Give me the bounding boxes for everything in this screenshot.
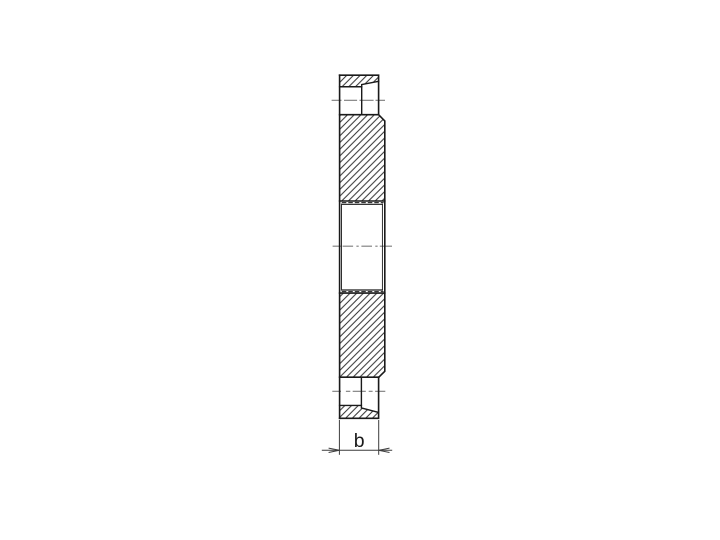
svg-text:b: b	[354, 430, 365, 452]
